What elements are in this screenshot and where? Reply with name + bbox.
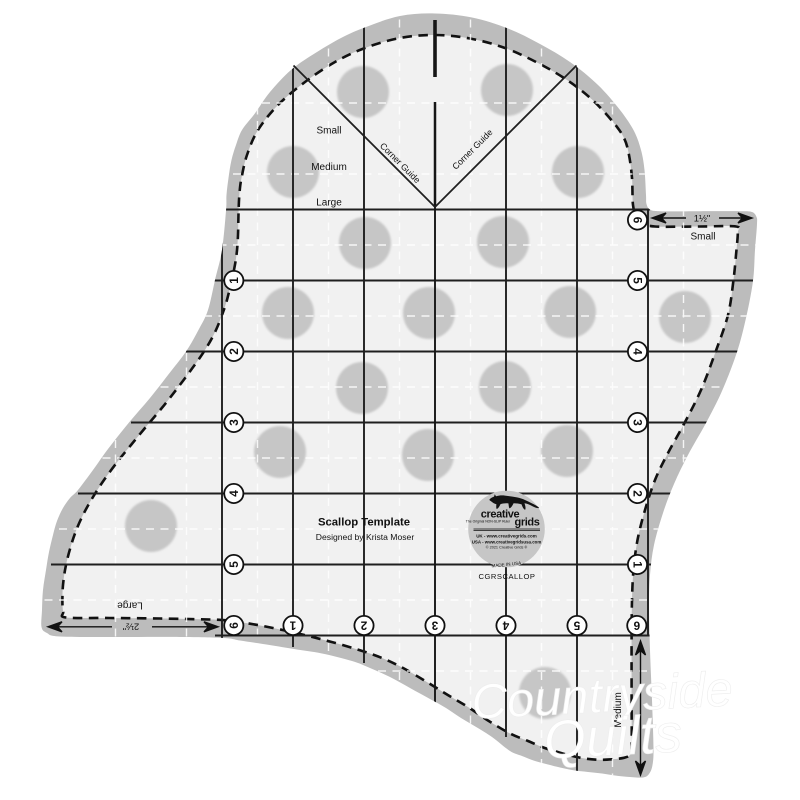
svg-text:Scallop Template: Scallop Template [318,517,410,529]
svg-text:3: 3 [431,618,438,632]
svg-text:6: 6 [227,622,241,629]
svg-text:2½": 2½" [123,621,140,632]
svg-text:UK - www.creativegrids.com: UK - www.creativegrids.com [476,533,537,538]
svg-text:3: 3 [227,419,241,426]
svg-text:Quilts: Quilts [542,703,683,770]
svg-text:Medium: Medium [311,162,347,173]
svg-text:1: 1 [630,561,644,568]
svg-text:Small: Small [690,232,715,243]
svg-text:grids: grids [515,517,540,529]
svg-text:2: 2 [360,618,367,632]
svg-text:USA - www.creativegridsusa.com: USA - www.creativegridsusa.com [472,539,542,544]
svg-text:4: 4 [630,348,644,355]
svg-text:2: 2 [630,490,644,497]
svg-text:2: 2 [227,348,241,355]
svg-text:6: 6 [630,217,644,224]
svg-text:1: 1 [227,277,241,284]
svg-text:Large: Large [316,198,342,209]
svg-text:1½": 1½" [694,214,711,225]
svg-text:5: 5 [630,277,644,284]
svg-text:6: 6 [633,618,640,632]
svg-text:Small: Small [316,126,341,137]
svg-text:CGRSCALLOP: CGRSCALLOP [479,572,536,581]
svg-text:Designed by Krista Moser: Designed by Krista Moser [316,532,415,542]
svg-text:1: 1 [289,618,296,632]
svg-text:4: 4 [502,618,509,632]
svg-text:5: 5 [573,618,580,632]
svg-text:4: 4 [227,490,241,497]
svg-text:Large: Large [117,600,143,611]
svg-text:3: 3 [630,419,644,426]
svg-text:5: 5 [227,561,241,568]
svg-text:© 2021 Creative Grids ®: © 2021 Creative Grids ® [486,546,528,550]
svg-text:The Original NON-SLIP Ruler: The Original NON-SLIP Ruler [466,519,511,523]
